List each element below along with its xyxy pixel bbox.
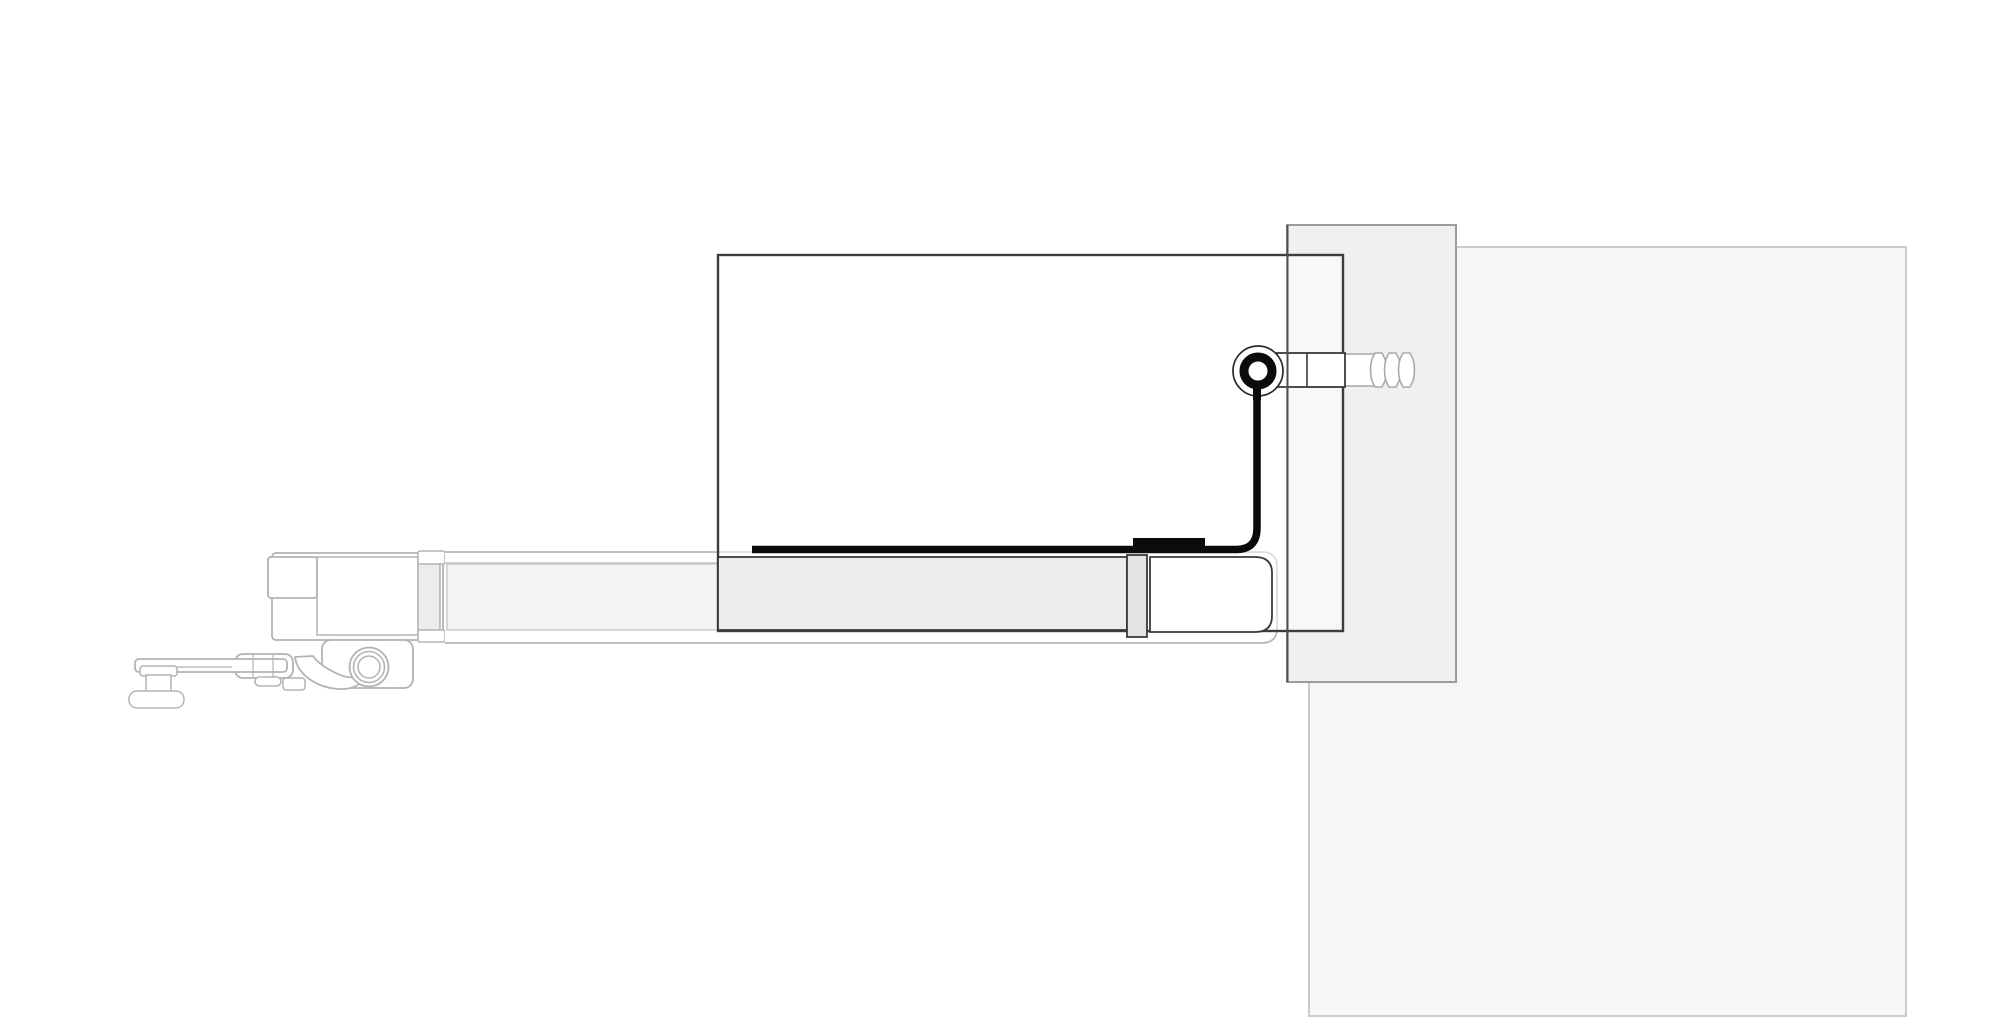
pivot-ring bbox=[1244, 357, 1272, 385]
rail-end-cap bbox=[1150, 557, 1272, 632]
glazing-channel bbox=[718, 557, 1127, 630]
channel-divider bbox=[1127, 555, 1147, 637]
pivot-bolt-rod-rear bbox=[1344, 354, 1374, 386]
technical-drawing bbox=[0, 0, 2000, 1024]
carriage-box-small bbox=[268, 557, 317, 598]
arm-foot bbox=[283, 678, 305, 690]
seal-block bbox=[1133, 538, 1205, 548]
carriage-clip-bottom bbox=[418, 630, 445, 642]
carriage-clip-strip bbox=[418, 558, 440, 640]
carriage-clip-top bbox=[418, 551, 445, 564]
roller-base bbox=[129, 691, 184, 708]
drawing-canvas bbox=[0, 0, 2000, 1024]
rail-left-fill bbox=[447, 564, 718, 630]
carriage-cavity bbox=[317, 557, 418, 635]
bolt-thread-3 bbox=[1399, 353, 1415, 387]
wheel-ring-inner bbox=[358, 656, 380, 678]
arm-nub bbox=[255, 677, 281, 686]
